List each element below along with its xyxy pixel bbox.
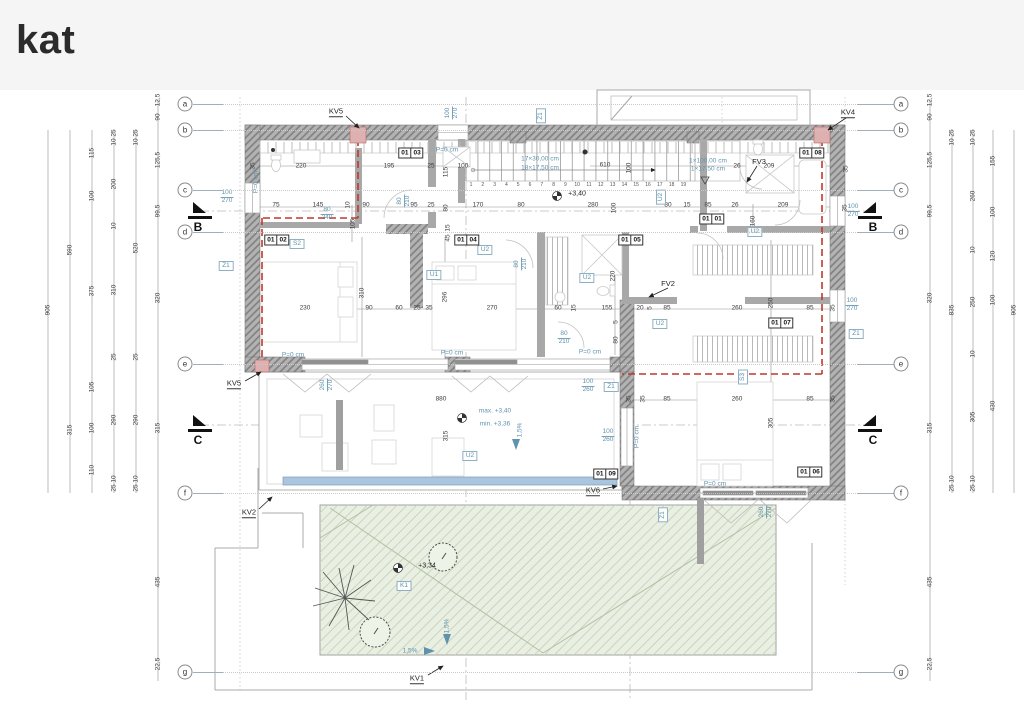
component-tag: Z1 <box>658 508 668 523</box>
dimension-label: 520 <box>133 243 140 254</box>
dimension-label: 35 <box>830 395 837 402</box>
dimension-label: 80 <box>613 336 620 343</box>
grid-leader <box>193 364 223 365</box>
stair-number: 11 <box>586 182 591 188</box>
stair-number: 14 <box>622 182 628 188</box>
dimension-label: 35 <box>626 395 633 402</box>
stair-number: 16 <box>645 182 651 188</box>
stair-number: 19 <box>681 182 687 188</box>
section-letter: C <box>194 433 203 447</box>
dimension-label: 60 <box>395 305 402 312</box>
dimension-label: 15 <box>571 304 578 311</box>
dimension-label: 290 <box>111 415 118 426</box>
grid-marker-f: f <box>894 486 909 501</box>
dimension-label: 85 <box>663 305 670 312</box>
dimension-label: 320 <box>927 293 934 304</box>
opening-size-label: 100260 <box>602 429 615 443</box>
dimension-label: 15 <box>683 202 690 209</box>
dimension-label: 435 <box>927 577 934 588</box>
dimension-label: 100 <box>89 191 96 202</box>
grid-leader <box>857 672 894 673</box>
dimension-label: 99,5 <box>927 205 934 218</box>
kv-label: KV5 <box>227 379 241 389</box>
stair-number: 3 <box>493 182 496 188</box>
annotation-text: 18×17,50 cm <box>521 165 559 172</box>
dimension-label: 90 <box>155 113 162 120</box>
dimension-label: 230 <box>300 305 311 312</box>
annotation-text: max. +3,40 <box>479 408 511 415</box>
dimension-label: 115 <box>443 167 450 177</box>
annotation-text: P=0 cm <box>579 349 601 356</box>
component-tag: K1 <box>397 581 412 591</box>
dimension-label: 10 <box>970 138 977 145</box>
stair-number: 9 <box>564 182 567 188</box>
dimension-label: 10 <box>111 138 118 145</box>
annotation-text: 1,5% <box>403 648 418 655</box>
dimension-label: 905 <box>45 305 52 316</box>
dimension-label: 10 <box>133 138 140 145</box>
dimension-label: 15 <box>445 224 452 231</box>
dimension-label: 160 <box>750 216 757 227</box>
stair-number: 5 <box>517 182 520 188</box>
grid-axis-line <box>190 232 908 233</box>
dimension-label: 22,5 <box>155 658 162 671</box>
dimension-label: 100 <box>626 163 633 174</box>
dimension-label: 25 <box>111 484 118 491</box>
dimension-label: 220 <box>610 271 617 282</box>
section-marker-icon <box>863 415 876 426</box>
dimension-label: 296 <box>442 292 449 303</box>
stair-number: 4 <box>505 182 508 188</box>
room-tag: 0106 <box>797 467 822 478</box>
dimension-label: 200 <box>111 179 118 190</box>
dimension-label: 100 <box>990 295 997 306</box>
grid-axis-line <box>190 104 908 105</box>
dimension-label: 209 <box>778 202 789 209</box>
dimension-label: 430 <box>990 401 997 412</box>
dimension-label: 60 <box>554 305 561 312</box>
dimension-label: 25 <box>427 202 434 209</box>
dimension-label: 25 <box>133 484 140 491</box>
section-marker-icon <box>863 202 876 213</box>
grid-axis-line <box>190 672 908 673</box>
grid-leader <box>857 104 894 105</box>
opening-size-label: 80210 <box>558 331 571 345</box>
component-tag: U2 <box>579 273 594 283</box>
annotation-text: P=0 cm <box>282 352 304 359</box>
opening-size-label: 80210 <box>397 195 411 208</box>
dimension-label: 100 <box>611 203 618 214</box>
dimension-label: 195 <box>384 163 395 170</box>
dimension-label: 10 <box>970 246 977 253</box>
elevation-label: +3,34 <box>418 563 436 570</box>
grid-marker-a: a <box>178 97 193 112</box>
dimension-label: 100 <box>990 207 997 218</box>
stair-number: 6 <box>529 182 532 188</box>
section-letter: C <box>869 433 878 447</box>
dimension-label: 125,5 <box>927 152 934 168</box>
dimension-label: 100 <box>89 423 96 434</box>
grid-marker-f: f <box>178 486 193 501</box>
dimension-label: 310 <box>111 285 118 296</box>
annotation-layer: 9055903151151003751051001102510200103102… <box>0 0 1024 706</box>
grid-leader <box>193 104 223 105</box>
dimension-label: 310 <box>359 288 366 299</box>
component-tag: U2 <box>462 451 477 461</box>
dimension-label: 22,5 <box>927 658 934 671</box>
dimension-label: 25 <box>949 484 956 491</box>
dimension-label: 90 <box>365 305 372 312</box>
grid-axis-line <box>190 364 908 365</box>
annotation-text: P=0 cm <box>634 426 641 448</box>
stair-number: 8 <box>552 182 555 188</box>
dimension-label: 90 <box>927 113 934 120</box>
dimension-label: 315 <box>443 431 450 442</box>
dimension-label: 10 <box>111 475 118 482</box>
stair-number: 10 <box>574 182 580 188</box>
dimension-label: 12,5 <box>155 94 162 107</box>
dimension-label: 280 <box>588 202 599 209</box>
section-marker-bar <box>188 216 212 219</box>
grid-axis-line <box>190 493 908 494</box>
opening-size-label: 100270 <box>221 190 234 204</box>
annotation-text: 1×100,00 cm <box>689 158 727 165</box>
dimension-label: 260 <box>732 305 743 312</box>
grid-marker-b: b <box>178 123 193 138</box>
grid-leader <box>193 672 223 673</box>
dimension-label: 315 <box>155 423 162 434</box>
dimension-label: 305 <box>768 418 775 429</box>
component-tag: S3 <box>738 370 748 385</box>
stair-number: 12 <box>598 182 604 188</box>
opening-size-label: 100270 <box>846 298 859 312</box>
dimension-label: 80 <box>443 204 450 211</box>
dimension-label: 435 <box>155 577 162 588</box>
stair-number: 1 <box>470 182 473 188</box>
room-tag: 0108 <box>799 148 824 159</box>
dimension-label: 315 <box>67 425 74 436</box>
annotation-text: P=0 cm <box>436 147 458 154</box>
section-marker-bar <box>858 216 882 219</box>
dimension-label: 290 <box>133 415 140 426</box>
dimension-label: 25 <box>427 163 434 170</box>
kv-label: KV1 <box>410 674 424 684</box>
dimension-label: 155 <box>990 156 997 167</box>
dimension-label: 25 <box>970 484 977 491</box>
grid-axis-line <box>190 130 908 131</box>
dimension-label: 95 <box>410 202 417 209</box>
opening-size-label: 100260 <box>582 379 595 393</box>
dimension-label: 75 <box>272 202 279 209</box>
grid-leader <box>857 130 894 131</box>
grid-marker-g: g <box>894 665 909 680</box>
stair-number: 7 <box>540 182 543 188</box>
dimension-label: 125,5 <box>155 152 162 168</box>
dimension-label: 85 <box>663 396 670 403</box>
dimension-label: 35 <box>843 165 850 172</box>
annotation-text: 1×17,50 cm <box>691 166 725 173</box>
dimension-label: 26 <box>733 163 740 170</box>
dimension-label: 115 <box>89 148 96 158</box>
dimension-label: 880 <box>436 396 447 403</box>
room-tag: 0107 <box>768 318 793 329</box>
grid-marker-d: d <box>894 225 909 240</box>
grid-marker-c: c <box>894 183 909 198</box>
component-tag: Z1 <box>604 382 619 392</box>
dimension-label: 10 <box>133 475 140 482</box>
annotation-text: P=0 cm <box>704 481 726 488</box>
dimension-label: 5 <box>613 320 620 324</box>
dimension-label: 155 <box>602 305 613 312</box>
stair-number: 18 <box>669 182 675 188</box>
grid-leader <box>857 493 894 494</box>
dimension-label: 25 <box>111 129 118 136</box>
dimension-label: 12,5 <box>927 94 934 107</box>
dimension-label: 5 <box>647 306 654 310</box>
grid-leader <box>193 130 223 131</box>
dimension-label: 835 <box>949 305 956 316</box>
dimension-label: 90 <box>362 202 369 209</box>
dimension-label: 80 <box>517 202 524 209</box>
dimension-label: 110 <box>89 465 96 475</box>
dimension-label: 35 <box>830 304 837 311</box>
dimension-label: 25 <box>413 305 420 312</box>
room-tag: 0101 <box>699 214 724 225</box>
grid-leader <box>857 190 894 191</box>
dimension-label: 120 <box>990 251 997 262</box>
stair-number: 15 <box>633 182 639 188</box>
dimension-label: 170 <box>473 202 484 209</box>
dimension-label: 100 <box>458 163 469 170</box>
dimension-label: 85 <box>704 202 711 209</box>
grid-axis-line <box>190 190 908 191</box>
dimension-label: 26 <box>731 202 738 209</box>
floor-plan-canvas: kat <box>0 0 1024 706</box>
grid-leader <box>857 364 894 365</box>
component-tag: Z1 <box>536 109 546 124</box>
dimension-label: 85 <box>806 396 813 403</box>
dimension-label: 260 <box>970 191 977 202</box>
dimension-label: 590 <box>67 245 74 256</box>
dimension-label: 105 <box>350 219 357 230</box>
opening-size-label: 100270 <box>445 107 459 120</box>
annotation-text: 17×30,00 cm <box>521 156 559 163</box>
dimension-label: 305 <box>970 412 977 423</box>
grid-leader <box>193 232 223 233</box>
dimension-label: 375 <box>89 286 96 297</box>
dimension-label: 25 <box>970 129 977 136</box>
dimension-label: 250 <box>970 297 977 308</box>
opening-size-label: 260270 <box>320 379 334 392</box>
dimension-label: 99,5 <box>155 205 162 218</box>
grid-leader <box>193 493 223 494</box>
annotation-text: 1,5% <box>444 619 451 634</box>
opening-size-label: 260270 <box>759 506 773 519</box>
room-tag: 0109 <box>593 469 618 480</box>
dimension-label: 35 <box>640 395 647 402</box>
dimension-label: 10 <box>970 475 977 482</box>
dimension-label: 270 <box>487 305 498 312</box>
component-tag: U1 <box>426 270 441 280</box>
dimension-label: 25 <box>133 353 140 360</box>
annotation-text: min. +3,36 <box>480 421 511 428</box>
dimension-label: 25 <box>111 353 118 360</box>
dimension-label: 10 <box>949 138 956 145</box>
section-marker-bar <box>858 429 882 432</box>
grid-marker-e: e <box>178 357 193 372</box>
stair-number: 13 <box>610 182 616 188</box>
dimension-label: 105 <box>89 382 96 393</box>
kv-label: KV5 <box>329 107 343 117</box>
dimension-label: 260 <box>732 396 743 403</box>
component-tag: U2 <box>652 319 667 329</box>
grid-marker-e: e <box>894 357 909 372</box>
annotation-text: P=0 cm <box>441 350 463 357</box>
component-tag: U2 <box>477 245 492 255</box>
dimension-label: 610 <box>600 162 611 169</box>
dimension-label: 35 <box>250 162 257 169</box>
dimension-label: 85 <box>806 305 813 312</box>
room-tag: 0102 <box>264 235 289 246</box>
component-tag: U2 <box>656 189 666 204</box>
component-tag: Z1 <box>849 329 864 339</box>
grid-leader <box>857 232 894 233</box>
dimension-label: 220 <box>296 163 307 170</box>
dimension-label: 315 <box>927 423 934 434</box>
dimension-label: 10 <box>970 350 977 357</box>
dimension-label: 10 <box>949 475 956 482</box>
dimension-label: 20 <box>636 305 643 312</box>
fv-label: FV2 <box>661 280 675 289</box>
kv-label: KV2 <box>242 508 256 518</box>
grid-marker-a: a <box>894 97 909 112</box>
room-tag: 0105 <box>618 235 643 246</box>
grid-marker-b: b <box>894 123 909 138</box>
dimension-label: 905 <box>1011 305 1018 316</box>
dimension-label: 35 <box>425 305 432 312</box>
section-marker-icon <box>193 415 206 426</box>
room-tag: 0104 <box>454 235 479 246</box>
opening-size-label: 80210 <box>514 258 528 271</box>
dimension-label: 250 <box>768 298 775 309</box>
stair-number: 2 <box>481 182 484 188</box>
stair-number: 17 <box>657 182 663 188</box>
dimension-label: 25 <box>133 129 140 136</box>
grid-leader <box>193 190 223 191</box>
grid-marker-d: d <box>178 225 193 240</box>
dimension-label: 10 <box>345 201 352 208</box>
kv-label: KV4 <box>841 108 855 118</box>
annotation-text: 1,5% <box>517 423 524 438</box>
grid-marker-c: c <box>178 183 193 198</box>
section-marker-bar <box>188 429 212 432</box>
kv-label: KV6 <box>586 486 600 496</box>
section-marker-icon <box>193 202 206 213</box>
room-tag: 0103 <box>398 148 423 159</box>
dimension-label: 45 <box>445 234 452 241</box>
dimension-label: 25 <box>949 129 956 136</box>
dimension-label: 10 <box>111 222 118 229</box>
component-tag: S2 <box>290 239 305 249</box>
elevation-label: +3,40 <box>568 191 586 198</box>
component-tag: Z1 <box>219 261 234 271</box>
dimension-label: 320 <box>155 293 162 304</box>
fv-label: FV3 <box>752 158 766 167</box>
opening-size-label: 80240 <box>321 207 334 221</box>
grid-marker-g: g <box>178 665 193 680</box>
